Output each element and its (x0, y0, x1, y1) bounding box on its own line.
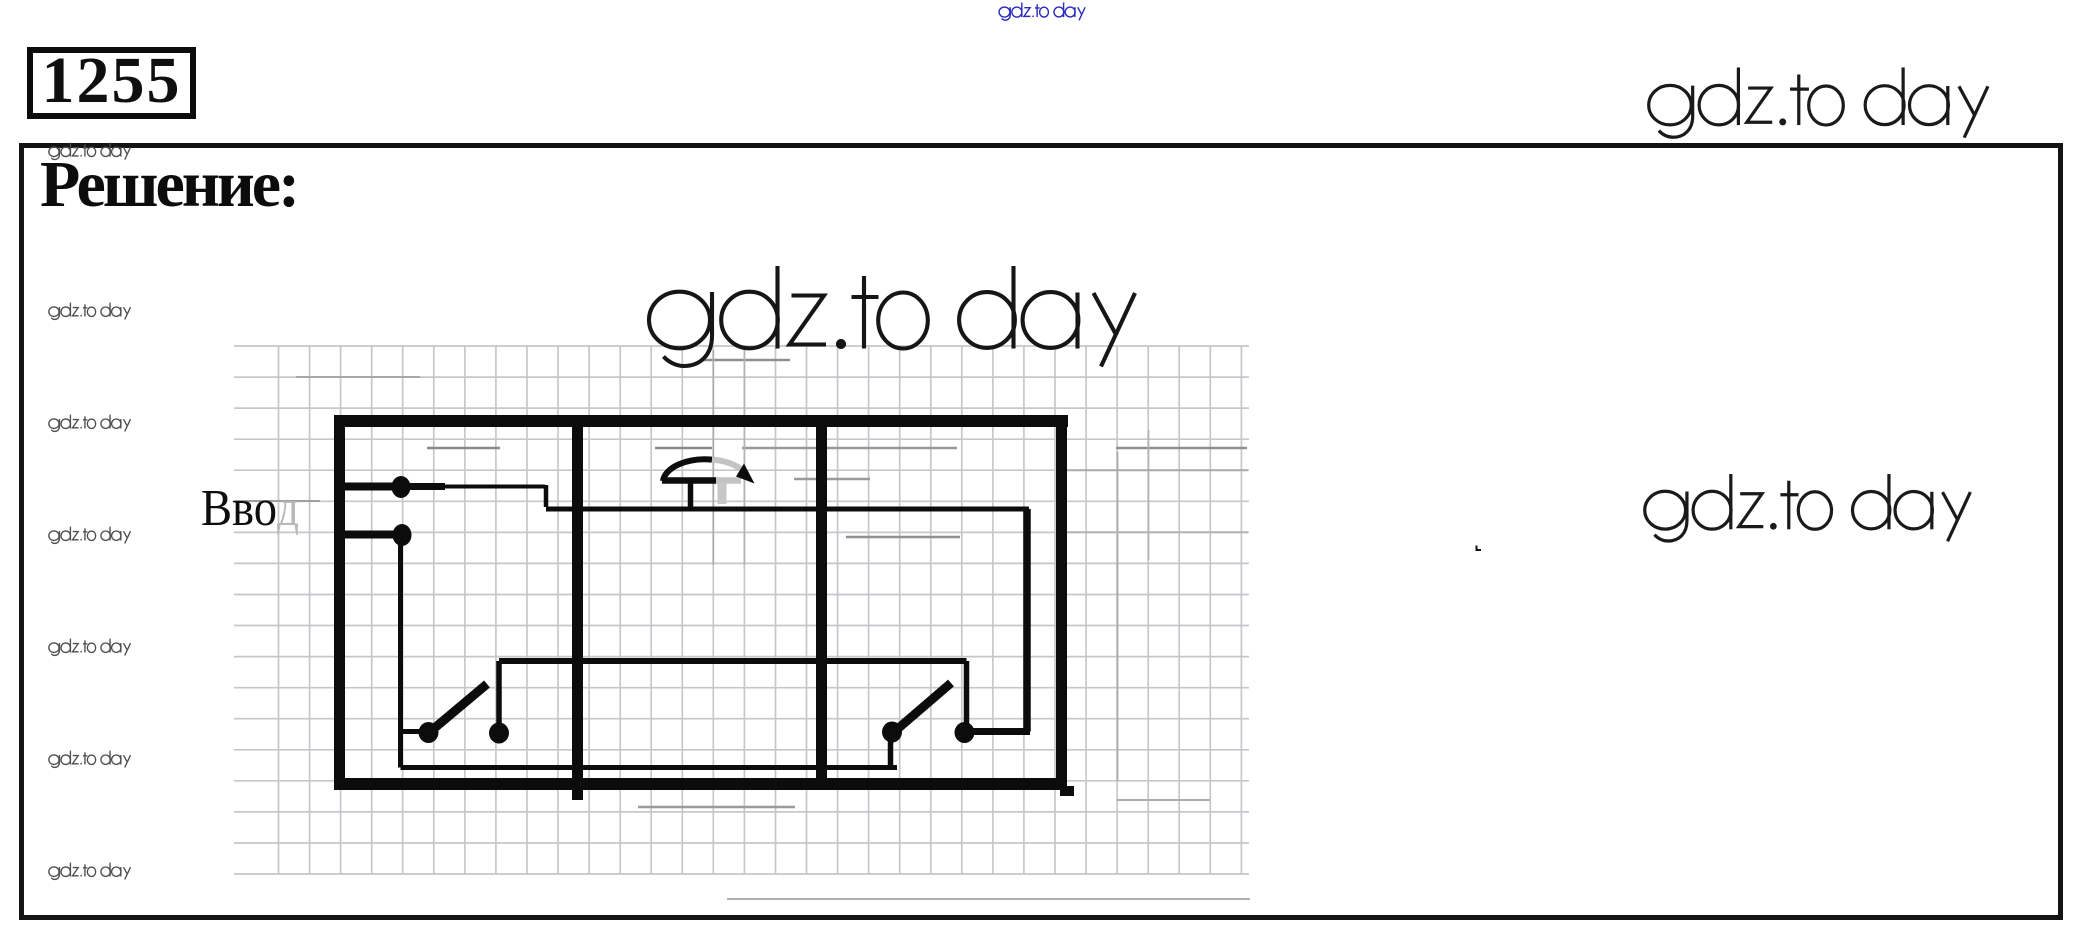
svg-text:Вво: Вво (201, 480, 277, 537)
svg-text:д: д (277, 480, 299, 537)
